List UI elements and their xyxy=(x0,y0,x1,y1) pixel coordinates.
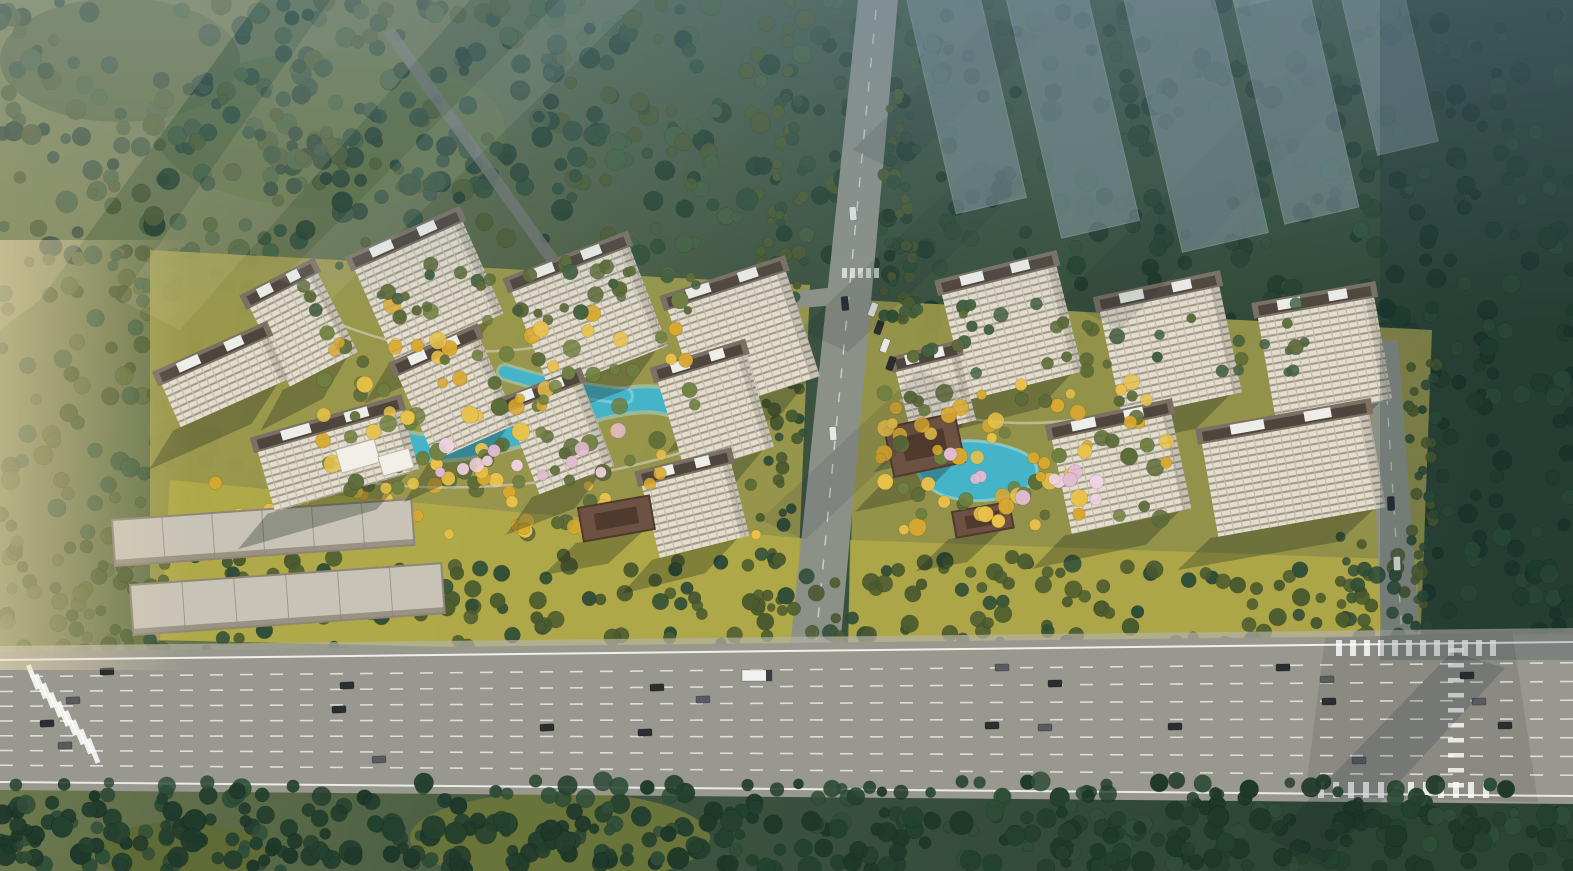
golden-tree xyxy=(1140,394,1152,406)
street-tree xyxy=(791,433,802,444)
golden-tree xyxy=(977,506,993,522)
car xyxy=(1276,664,1290,671)
buffer-tree xyxy=(983,596,997,610)
forest-tree xyxy=(1203,849,1221,867)
buffer-tree xyxy=(1293,609,1305,621)
golden-tree xyxy=(444,529,454,539)
forest-tree xyxy=(721,855,738,871)
forest-tree xyxy=(1274,848,1292,866)
forest-tree xyxy=(493,811,510,828)
car xyxy=(540,724,554,731)
buffer-tree xyxy=(1215,574,1230,589)
forest-tree xyxy=(250,837,263,850)
crosswalk-bar xyxy=(1448,738,1464,743)
forest-tree xyxy=(894,785,909,800)
golden-tree xyxy=(209,476,222,489)
buffer-tree xyxy=(757,613,774,630)
forest-tree xyxy=(950,811,974,835)
street-tree xyxy=(776,480,784,488)
golden-tree xyxy=(932,445,943,456)
forest-tree xyxy=(987,806,1003,822)
courtyard-tree xyxy=(971,367,982,378)
aerial-rendering xyxy=(0,0,1573,871)
forest-tree xyxy=(742,779,754,791)
blossom-tree xyxy=(575,442,590,457)
courtyard-tree xyxy=(1082,320,1093,331)
blossom-tree xyxy=(537,470,548,481)
courtyard-tree xyxy=(1216,365,1229,378)
buffer-tree xyxy=(742,559,754,571)
golden-tree xyxy=(411,339,424,352)
golden-tree xyxy=(1030,519,1041,530)
forest-tree xyxy=(425,852,438,865)
forest-tree xyxy=(364,793,381,810)
forest-tree xyxy=(1180,807,1198,825)
forest-tree xyxy=(847,788,865,806)
forest-tree xyxy=(157,793,168,804)
courtyard-tree xyxy=(1152,352,1163,363)
golden-tree xyxy=(1071,490,1088,507)
forest-tree xyxy=(1005,825,1025,845)
golden-tree xyxy=(654,467,667,480)
golden-tree xyxy=(1120,448,1137,465)
forest-tree xyxy=(1168,772,1185,789)
golden-tree xyxy=(564,475,575,486)
golden-tree xyxy=(877,474,893,490)
blossom-tree xyxy=(488,444,501,457)
golden-tree xyxy=(515,394,525,404)
forest-tree xyxy=(212,852,224,864)
golden-tree xyxy=(400,410,415,425)
forest-tree xyxy=(665,775,684,794)
forest-tree xyxy=(403,849,420,866)
buffer-tree xyxy=(977,582,988,593)
forest-tree xyxy=(1104,852,1118,866)
crosswalk-bar xyxy=(1364,640,1370,656)
forest-tree xyxy=(924,813,941,830)
forest-tree xyxy=(1408,788,1425,805)
forest-tree xyxy=(1110,811,1126,827)
forest-tree xyxy=(793,779,803,789)
blossom-tree xyxy=(1090,475,1104,489)
forest-tree xyxy=(1090,843,1106,859)
courtyard-tree xyxy=(984,325,994,335)
buffer-tree xyxy=(1247,598,1258,609)
golden-tree xyxy=(344,430,357,443)
buffer-tree xyxy=(1095,602,1106,613)
golden-tree xyxy=(538,395,548,405)
buffer-tree xyxy=(846,612,859,625)
golden-tree xyxy=(452,371,467,386)
buffer-tree xyxy=(1096,580,1110,594)
forest-tree xyxy=(267,838,282,853)
forest-tree xyxy=(163,801,183,821)
golden-tree xyxy=(644,478,656,490)
street-tree xyxy=(1357,539,1367,549)
golden-tree xyxy=(899,525,909,535)
courtyard-tree xyxy=(1061,352,1072,363)
courtyard-tree xyxy=(1235,352,1248,365)
golden-tree xyxy=(1078,444,1093,459)
forest-tree xyxy=(240,815,252,827)
car xyxy=(995,664,1009,671)
buffer-tree xyxy=(1200,567,1212,579)
buffer-tree xyxy=(624,563,639,578)
forest-tree xyxy=(660,826,676,842)
forest-tree xyxy=(1131,851,1154,871)
forest-tree xyxy=(312,787,331,806)
buffer-tree xyxy=(831,613,841,623)
golden-tree xyxy=(350,411,360,421)
golden-tree xyxy=(1115,384,1126,395)
crosswalk-bar xyxy=(1468,782,1474,798)
forest-tree xyxy=(382,818,405,841)
buffer-tree xyxy=(1120,560,1134,574)
blossom-tree xyxy=(595,467,606,478)
golden-tree xyxy=(911,488,925,502)
blossom-tree xyxy=(482,456,493,467)
courtyard-tree xyxy=(921,345,933,357)
golden-tree xyxy=(970,450,984,464)
forest-tree xyxy=(159,828,175,844)
buffer-tree xyxy=(674,597,687,610)
courtyard-tree xyxy=(1041,357,1053,369)
golden-tree xyxy=(536,427,547,438)
golden-tree xyxy=(429,332,446,349)
forest-tree xyxy=(101,788,115,802)
forest-tree xyxy=(450,797,467,814)
buffer-tree xyxy=(652,593,669,610)
golden-tree xyxy=(992,514,1006,528)
forest-tree xyxy=(21,851,33,863)
forest-tree xyxy=(180,828,204,852)
courtyard-tree xyxy=(907,350,920,363)
buffer-tree xyxy=(891,563,904,576)
buffer-tree xyxy=(1242,617,1256,631)
golden-tree xyxy=(1114,396,1125,407)
forest-tree xyxy=(1031,772,1051,792)
golden-tree xyxy=(533,321,549,337)
golden-tree xyxy=(334,337,345,348)
golden-tree xyxy=(649,431,666,448)
forest-tree xyxy=(501,788,513,800)
buffer-tree xyxy=(1065,581,1083,599)
forest-tree xyxy=(828,819,847,838)
golden-tree xyxy=(1028,452,1040,464)
buffer-tree xyxy=(216,631,230,645)
golden-tree xyxy=(898,482,910,494)
forest-tree xyxy=(960,850,981,871)
forest-tree xyxy=(108,822,130,844)
forest-tree xyxy=(239,802,251,814)
golden-tree xyxy=(407,478,419,490)
buffer-tree xyxy=(464,610,478,624)
forest-tree xyxy=(52,816,73,837)
buffer-tree xyxy=(1316,593,1326,603)
golden-tree xyxy=(998,499,1014,515)
blossom-tree xyxy=(435,467,445,477)
forest-tree xyxy=(770,783,784,797)
forest-tree xyxy=(224,851,243,870)
buffer-tree xyxy=(472,561,488,577)
car xyxy=(1038,724,1052,731)
golden-tree xyxy=(751,530,761,540)
golden-tree xyxy=(1124,416,1137,429)
forest-tree xyxy=(801,811,821,831)
buffer-tree xyxy=(995,571,1008,584)
street-tree xyxy=(786,410,798,422)
golden-tree xyxy=(1139,501,1150,512)
forest-tree xyxy=(1536,805,1557,826)
forest-tree xyxy=(686,836,704,854)
golden-tree xyxy=(1066,389,1076,399)
forest-tree xyxy=(536,844,551,859)
buffer-tree xyxy=(1230,577,1246,593)
forest-tree xyxy=(640,780,654,794)
forest-tree xyxy=(604,825,615,836)
forest-tree xyxy=(1250,808,1272,830)
buffer-tree xyxy=(982,617,993,628)
buffer-tree xyxy=(696,608,707,619)
blossom-tree xyxy=(439,438,455,454)
golden-tree xyxy=(655,332,667,344)
car xyxy=(332,706,346,713)
buffer-tree xyxy=(1351,578,1365,592)
golden-tree xyxy=(499,346,514,361)
forest-tree xyxy=(746,854,758,866)
forest-tree xyxy=(247,860,260,871)
forest-tree xyxy=(133,836,149,852)
forest-tree xyxy=(774,844,786,856)
forest-tree xyxy=(575,816,591,832)
warm-glow xyxy=(0,240,190,670)
golden-tree xyxy=(380,483,391,494)
golden-tree xyxy=(1159,434,1174,449)
forest-tree xyxy=(320,828,331,839)
forest-tree xyxy=(1150,774,1168,792)
scene-svg xyxy=(0,0,1573,871)
buffer-tree xyxy=(876,575,893,592)
truck-cab xyxy=(766,670,772,681)
golden-tree xyxy=(377,384,390,397)
golden-tree xyxy=(1152,510,1170,528)
car xyxy=(829,426,837,441)
golden-tree xyxy=(1160,457,1172,469)
golden-tree xyxy=(1105,434,1119,448)
golden-tree xyxy=(689,399,700,410)
forest-tree xyxy=(541,820,561,840)
golden-tree xyxy=(908,518,926,536)
forest-tree xyxy=(982,854,1002,871)
crosswalk-bar xyxy=(1350,640,1356,656)
forest-tree xyxy=(811,791,825,805)
buffer-tree xyxy=(681,582,694,595)
blossom-tree xyxy=(566,456,578,468)
blossom-tree xyxy=(944,448,957,461)
forest-tree xyxy=(78,837,95,854)
golden-tree xyxy=(1040,510,1050,520)
forest-tree xyxy=(82,802,97,817)
buffer-tree xyxy=(490,593,505,608)
forest-tree xyxy=(1509,808,1519,818)
golden-tree xyxy=(921,477,935,491)
buffer-tree xyxy=(234,633,245,644)
forest-tree xyxy=(1216,833,1235,852)
golden-tree xyxy=(609,364,620,375)
buffer-tree xyxy=(529,592,546,609)
forest-tree xyxy=(1209,787,1221,799)
forest-tree xyxy=(1189,855,1204,870)
forest-tree xyxy=(1455,829,1475,849)
golden-tree xyxy=(438,378,448,388)
golden-tree xyxy=(563,340,581,358)
golden-tree xyxy=(391,481,404,494)
golden-tree xyxy=(682,382,697,397)
buffer-tree xyxy=(881,565,892,576)
forest-tree xyxy=(331,805,348,822)
car xyxy=(372,756,386,763)
car xyxy=(1498,722,1512,729)
golden-tree xyxy=(1113,509,1125,521)
forest-tree xyxy=(996,789,1009,802)
forest-tree xyxy=(1484,778,1497,791)
forest-tree xyxy=(631,806,651,826)
forest-tree xyxy=(1289,862,1300,871)
golden-tree xyxy=(1050,399,1064,413)
golden-tree xyxy=(1070,405,1086,421)
buffer-tree xyxy=(753,590,764,601)
street-tree xyxy=(776,452,787,463)
forest-tree xyxy=(1208,806,1229,827)
golden-tree xyxy=(665,353,676,364)
buffer-tree xyxy=(808,585,824,601)
truck xyxy=(742,670,772,681)
blossom-tree xyxy=(1015,490,1030,505)
golden-tree xyxy=(320,326,335,341)
forest-tree xyxy=(877,822,897,842)
forest-tree xyxy=(16,795,35,814)
buffer-tree xyxy=(1274,580,1285,591)
forest-tree xyxy=(1177,827,1191,841)
forest-tree xyxy=(1526,825,1538,837)
forest-tree xyxy=(1534,852,1547,865)
golden-tree xyxy=(586,367,601,382)
buffer-tree xyxy=(965,567,976,578)
golden-tree xyxy=(348,474,364,490)
car xyxy=(638,729,652,736)
forest-tree xyxy=(1181,842,1195,856)
golden-tree xyxy=(416,451,430,465)
forest-tree xyxy=(367,815,383,831)
golden-tree xyxy=(317,408,331,422)
golden-tree xyxy=(316,372,332,388)
golden-tree xyxy=(356,376,373,393)
blossom-tree xyxy=(611,423,626,438)
courtyard-tree xyxy=(967,321,978,332)
golden-tree xyxy=(380,415,397,432)
forest-tree xyxy=(115,859,128,871)
blossom-tree xyxy=(511,460,523,472)
forest-tree xyxy=(104,778,114,788)
forest-tree xyxy=(729,843,742,856)
forest-tree xyxy=(1037,809,1056,828)
golden-tree xyxy=(549,380,562,393)
buffer-tree xyxy=(994,605,1012,623)
forest-tree xyxy=(58,778,70,790)
buffer-tree xyxy=(1311,617,1323,629)
forest-tree xyxy=(449,857,465,871)
buffer-tree xyxy=(799,569,815,585)
forest-tree xyxy=(287,833,302,848)
buffer-tree xyxy=(1181,573,1196,588)
courtyard-tree xyxy=(1260,339,1270,349)
car xyxy=(66,697,80,704)
golden-tree xyxy=(512,423,530,441)
forest-tree xyxy=(764,815,783,834)
forest-tree xyxy=(445,822,467,844)
buffer-tree xyxy=(1250,582,1263,595)
blossom-tree xyxy=(1090,493,1102,505)
golden-tree xyxy=(916,508,927,519)
golden-tree xyxy=(491,398,508,415)
forest-tree xyxy=(877,787,887,797)
forest-tree xyxy=(823,780,840,797)
street-tree xyxy=(1337,599,1347,609)
golden-tree xyxy=(987,433,998,444)
forest-tree xyxy=(1537,829,1555,847)
forest-tree xyxy=(1151,833,1165,847)
buffer-tree xyxy=(493,565,509,581)
golden-tree xyxy=(745,479,757,491)
buffer-tree xyxy=(1131,606,1144,619)
golden-tree xyxy=(626,364,640,378)
buffer-tree xyxy=(1035,576,1052,593)
forest-tree xyxy=(699,814,716,831)
buffer-tree xyxy=(1122,618,1139,635)
golden-tree xyxy=(938,496,950,508)
forest-tree xyxy=(558,776,578,796)
golden-tree xyxy=(613,332,629,348)
buffer-tree xyxy=(1292,588,1310,606)
golden-tree xyxy=(1039,395,1052,408)
golden-tree xyxy=(461,406,478,423)
forest-tree xyxy=(850,841,868,859)
golden-tree xyxy=(562,366,575,379)
blossom-tree xyxy=(1049,473,1061,485)
golden-tree xyxy=(669,322,683,336)
golden-tree xyxy=(1015,379,1027,391)
car xyxy=(1048,680,1062,687)
buffer-tree xyxy=(772,553,786,567)
street-tree xyxy=(775,433,784,442)
crosswalk-bar xyxy=(1448,768,1464,773)
golden-tree xyxy=(582,325,595,338)
forest-tree xyxy=(1504,817,1522,835)
golden-tree xyxy=(388,340,402,354)
crosswalk-bar xyxy=(1336,640,1342,656)
golden-tree xyxy=(999,427,1011,439)
forest-tree xyxy=(529,775,542,788)
car xyxy=(40,720,54,727)
forest-tree xyxy=(667,847,689,869)
golden-tree xyxy=(1140,438,1155,453)
forest-tree xyxy=(863,781,876,794)
buffer-tree xyxy=(1055,568,1065,578)
forest-tree xyxy=(255,788,269,802)
forest-tree xyxy=(1055,846,1070,861)
buffer-tree xyxy=(901,615,919,633)
golden-tree xyxy=(366,424,381,439)
